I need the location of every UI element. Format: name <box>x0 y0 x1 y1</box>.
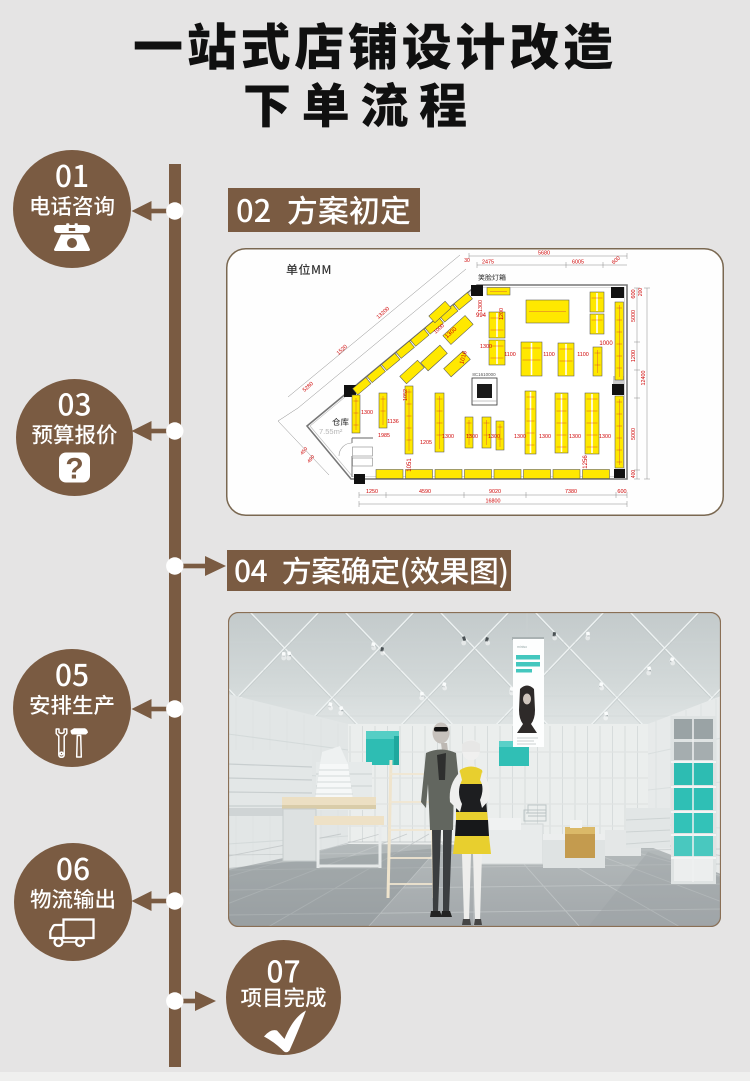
svg-text:1300: 1300 <box>569 434 581 440</box>
svg-text:1300: 1300 <box>488 434 500 440</box>
svg-text:7.55m²: 7.55m² <box>319 427 343 436</box>
svg-text:1300: 1300 <box>442 434 454 440</box>
svg-text:1300: 1300 <box>480 344 492 350</box>
svg-text:12400: 12400 <box>641 371 647 386</box>
svg-text:7380: 7380 <box>565 489 577 495</box>
svg-text:1256: 1256 <box>583 455 589 469</box>
svg-text:1300: 1300 <box>599 434 611 440</box>
svg-text:1985: 1985 <box>378 433 390 439</box>
svg-text:30: 30 <box>464 258 470 264</box>
svg-text:1250: 1250 <box>366 489 378 495</box>
svg-text:1100: 1100 <box>504 352 516 358</box>
svg-text:400: 400 <box>631 470 637 479</box>
svg-text:1051: 1051 <box>407 458 413 472</box>
svg-text:5000: 5000 <box>631 428 637 440</box>
svg-text:4590: 4590 <box>419 489 431 495</box>
svg-text:1200: 1200 <box>631 350 637 362</box>
svg-text:1300: 1300 <box>478 300 484 312</box>
svg-text:1200: 1200 <box>499 308 505 320</box>
svg-text:994: 994 <box>476 313 487 319</box>
svg-text:9020: 9020 <box>489 489 501 495</box>
svg-text:600: 600 <box>617 489 626 495</box>
svg-text:5680: 5680 <box>538 251 550 257</box>
svg-text:1000: 1000 <box>599 341 613 347</box>
svg-text:1300: 1300 <box>539 434 551 440</box>
svg-text:2475: 2475 <box>482 260 494 266</box>
svg-text:1100: 1100 <box>577 352 589 358</box>
svg-text:1205: 1205 <box>420 440 432 446</box>
svg-text:8C1610000: 8C1610000 <box>472 372 496 377</box>
svg-text:1136: 1136 <box>387 419 399 425</box>
svg-text:?: ? <box>65 452 83 485</box>
svg-text:1300: 1300 <box>514 434 526 440</box>
svg-text:1052: 1052 <box>403 389 409 401</box>
svg-text:1100: 1100 <box>543 352 555 358</box>
svg-text:600: 600 <box>631 289 637 298</box>
svg-text:miniso: miniso <box>517 645 527 649</box>
svg-text:1300: 1300 <box>466 434 478 440</box>
svg-text:6005: 6005 <box>572 260 584 266</box>
svg-text:1300: 1300 <box>361 410 373 416</box>
svg-text:200: 200 <box>638 288 644 297</box>
svg-text:16800: 16800 <box>486 499 501 505</box>
svg-text:5000: 5000 <box>631 310 637 322</box>
